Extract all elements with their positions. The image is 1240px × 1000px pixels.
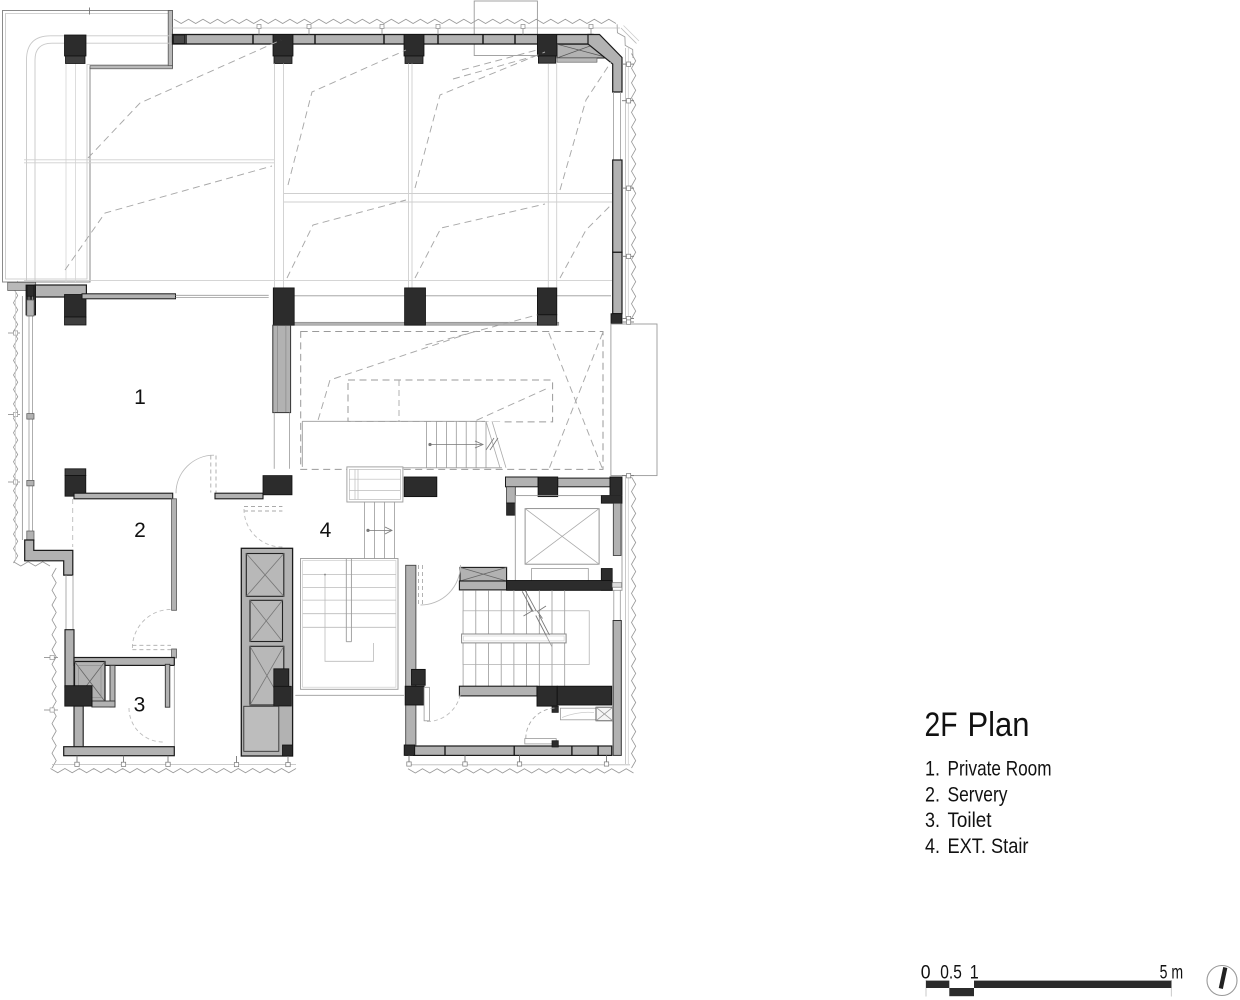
svg-text:Private Room: Private Room	[948, 757, 1052, 780]
svg-text:Plan: Plan	[968, 706, 1030, 744]
svg-text:4: 4	[320, 519, 332, 542]
svg-text:2.: 2.	[925, 783, 940, 806]
svg-text:1: 1	[134, 386, 146, 409]
svg-text:Servery: Servery	[948, 783, 1008, 806]
svg-text:2: 2	[134, 519, 146, 542]
svg-text:4.: 4.	[925, 835, 940, 858]
svg-text:Toilet: Toilet	[948, 809, 992, 832]
svg-text:2F: 2F	[925, 706, 958, 744]
svg-text:0.5: 0.5	[940, 962, 962, 983]
svg-text:3.: 3.	[925, 809, 940, 832]
svg-text:EXT. Stair: EXT. Stair	[948, 835, 1029, 858]
svg-text:1.: 1.	[925, 757, 940, 780]
svg-text:3: 3	[134, 694, 146, 717]
svg-text:1: 1	[970, 962, 979, 983]
